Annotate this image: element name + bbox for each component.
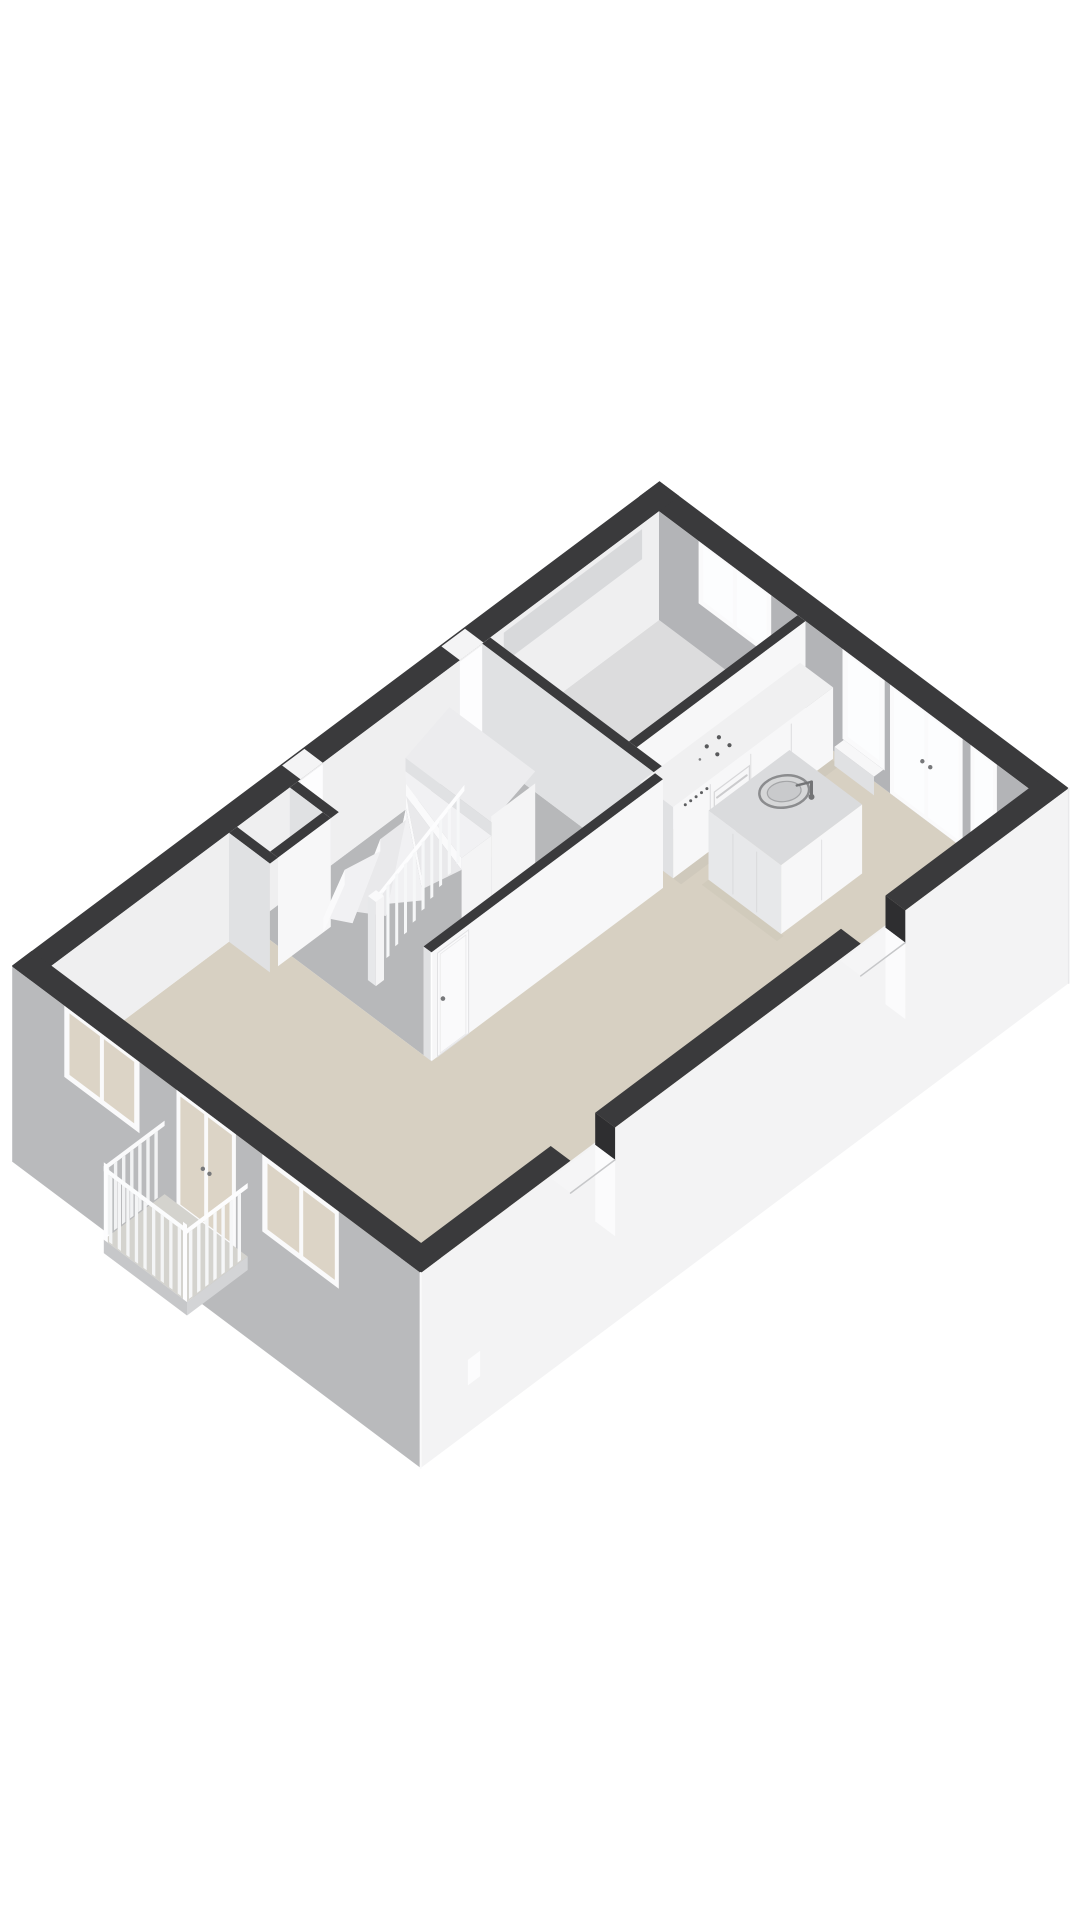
balcony-door-pane: [208, 1117, 232, 1243]
balcony-baluster: [238, 1193, 241, 1262]
balcony-baluster: [161, 1214, 164, 1283]
stair-baluster: [386, 884, 389, 958]
newel-post: [368, 896, 376, 986]
door-handle: [920, 759, 924, 763]
newel-post: [376, 896, 384, 986]
stove-knob: [689, 799, 692, 802]
balcony-baluster: [109, 1175, 112, 1244]
central-wall-end: [424, 947, 432, 1062]
opening-reveal-side: [886, 928, 906, 1019]
opening-reveal-side: [595, 1145, 615, 1236]
balcony-baluster: [205, 1218, 208, 1287]
balcony-baluster: [135, 1195, 138, 1264]
balcony-baluster: [143, 1201, 146, 1270]
balcony-baluster: [178, 1227, 181, 1296]
hob-knob: [699, 758, 702, 761]
stair-baluster: [457, 798, 460, 865]
balcony-baluster: [189, 1230, 192, 1299]
floor-plan-svg: [0, 0, 1080, 1920]
balcony-baluster: [213, 1212, 216, 1281]
door-handle: [441, 996, 446, 1001]
hob-burner: [717, 735, 721, 739]
stove-knob: [684, 803, 687, 806]
stair-baluster: [422, 840, 425, 911]
balcony-baluster: [169, 1220, 172, 1289]
floor-plan-canvas: [0, 0, 1080, 1920]
door-handle: [201, 1167, 205, 1171]
stove-knob: [700, 791, 703, 794]
balcony-baluster: [221, 1205, 224, 1274]
balcony-post: [104, 1162, 108, 1242]
door-handle: [207, 1172, 211, 1176]
balcony-post: [183, 1222, 187, 1302]
hob-burner: [705, 744, 709, 748]
hob-burner: [727, 743, 731, 747]
stair-baluster: [413, 851, 416, 922]
balcony-baluster: [126, 1188, 129, 1257]
balcony-baluster: [154, 1131, 157, 1200]
stove-knob: [705, 787, 708, 790]
balcony-baluster: [146, 1137, 149, 1206]
balcony-baluster: [138, 1143, 141, 1212]
balcony-door-pane: [180, 1097, 204, 1223]
balcony-baluster: [118, 1182, 121, 1251]
stove-knob: [695, 795, 698, 798]
balcony-baluster: [152, 1208, 155, 1277]
hob-burner: [715, 752, 719, 756]
stair-baluster: [404, 862, 407, 934]
balcony-baluster: [130, 1149, 133, 1218]
stair-baluster: [430, 830, 433, 899]
door-handle: [928, 765, 932, 769]
balcony-baluster: [114, 1161, 117, 1230]
stair-baluster: [395, 873, 398, 947]
balcony-baluster: [230, 1199, 233, 1268]
floor-plan-3d: [0, 0, 1080, 1920]
stair-baluster: [439, 819, 442, 887]
balcony-baluster: [122, 1155, 125, 1224]
stair-baluster: [448, 808, 451, 876]
balcony-baluster: [197, 1224, 200, 1293]
